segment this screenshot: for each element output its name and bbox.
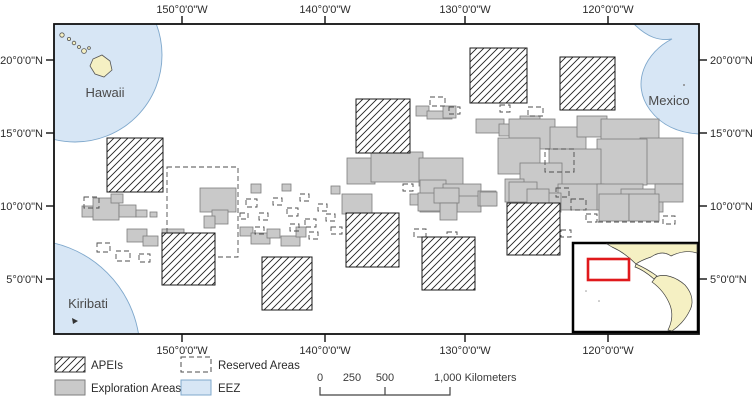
mexico-label: Mexico [648,93,689,108]
lon-tick-bottom: 120°0'0"W [582,345,634,357]
lat-tick-left: 15°0'0"N [0,128,43,140]
lon-tick-bottom: 130°0'0"W [439,345,491,357]
legend-exploration-swatch [55,380,85,395]
lat-tick-left: 10°0'0"N [0,201,43,213]
legend-reserved-label: Reserved Areas [218,360,300,372]
mexico-island-dot [683,84,685,86]
hawaii-label: Hawaii [85,85,124,100]
scale-bar: 0 250 500 1,000 Kilometers [317,372,517,395]
lon-tick-top: 150°0'0"W [156,4,208,16]
lon-tick-top: 120°0'0"W [582,4,634,16]
legend-exploration-label: Exploration Areas [91,383,181,395]
lon-tick-bottom: 150°0'0"W [156,345,208,357]
lon-tick-bottom: 140°0'0"W [299,345,351,357]
legend-reserved-swatch [181,357,211,372]
lat-tick-left: 5°0'0"N [6,274,43,286]
legend-eez-label: EEZ [218,383,240,395]
scale-1000-label: 1,000 Kilometers [434,372,517,384]
legend-eez-swatch [181,380,211,395]
map-canvas: Hawaii Mexico Kiribati 150°0'0"W 140°0'0… [0,0,754,403]
lat-tick-right: 15°0'0"N [710,128,753,140]
legend: APEIs Reserved Areas Exploration Areas E… [55,357,300,395]
legend-apei-swatch [55,357,85,372]
lat-tick-right: 20°0'0"N [710,55,753,67]
ccz-map-figure: Hawaii Mexico Kiribati 150°0'0"W 140°0'0… [0,0,754,403]
inset-locator-map [573,243,698,332]
scale-500: 500 [376,372,394,384]
scale-bar-line [320,387,450,395]
lat-tick-right: 5°0'0"N [710,274,747,286]
lat-tick-left: 20°0'0"N [0,55,43,67]
lat-tick-right: 10°0'0"N [710,201,753,213]
lon-tick-top: 140°0'0"W [299,4,351,16]
lon-tick-top: 130°0'0"W [439,4,491,16]
scale-0: 0 [317,372,323,384]
kiribati-label: Kiribati [68,296,108,311]
legend-apei-label: APEIs [91,360,123,372]
scale-250: 250 [343,372,361,384]
